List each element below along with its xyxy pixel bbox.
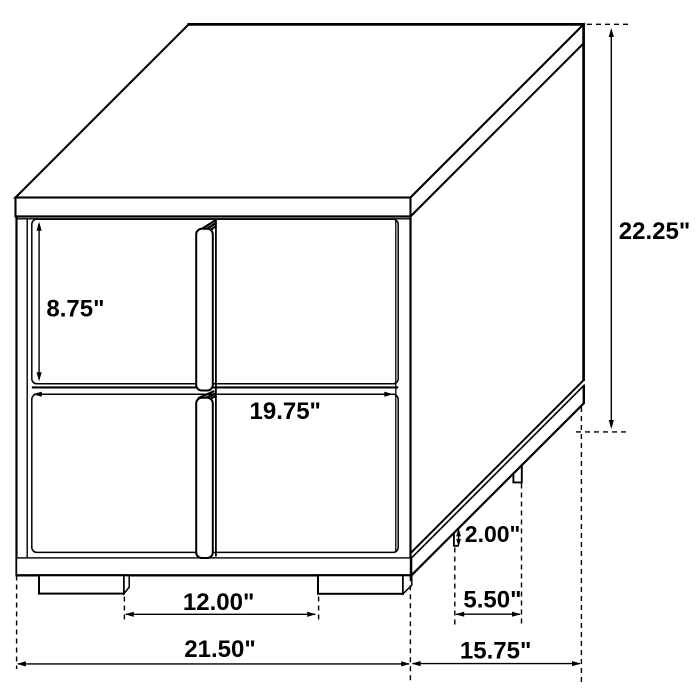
svg-text:8.75": 8.75" — [46, 295, 104, 322]
svg-text:12.00": 12.00" — [183, 589, 254, 616]
svg-text:15.75": 15.75" — [460, 638, 531, 665]
svg-text:5.50": 5.50" — [463, 587, 521, 614]
svg-text:22.25": 22.25" — [619, 218, 690, 245]
svg-text:19.75": 19.75" — [250, 398, 321, 425]
svg-text:2.00": 2.00" — [465, 521, 521, 547]
svg-text:21.50": 21.50" — [184, 636, 255, 663]
